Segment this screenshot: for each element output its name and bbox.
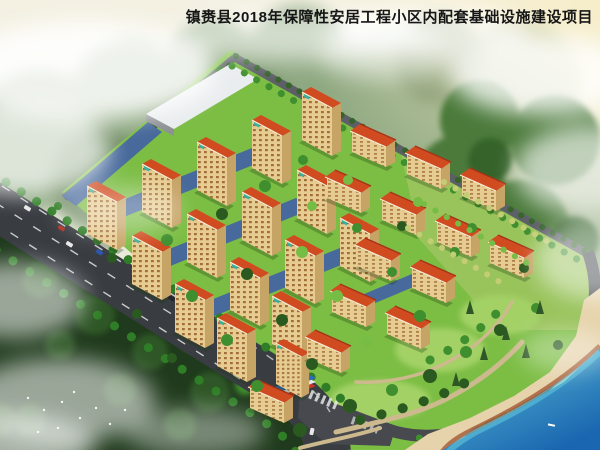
aerial-rendering-figure: 镇赉县2018年保障性安居工程小区内配套基础设施建设项目 [0,0,600,450]
project-title: 镇赉县2018年保障性安居工程小区内配套基础设施建设项目 [186,6,593,27]
rendering-scene [0,0,600,450]
